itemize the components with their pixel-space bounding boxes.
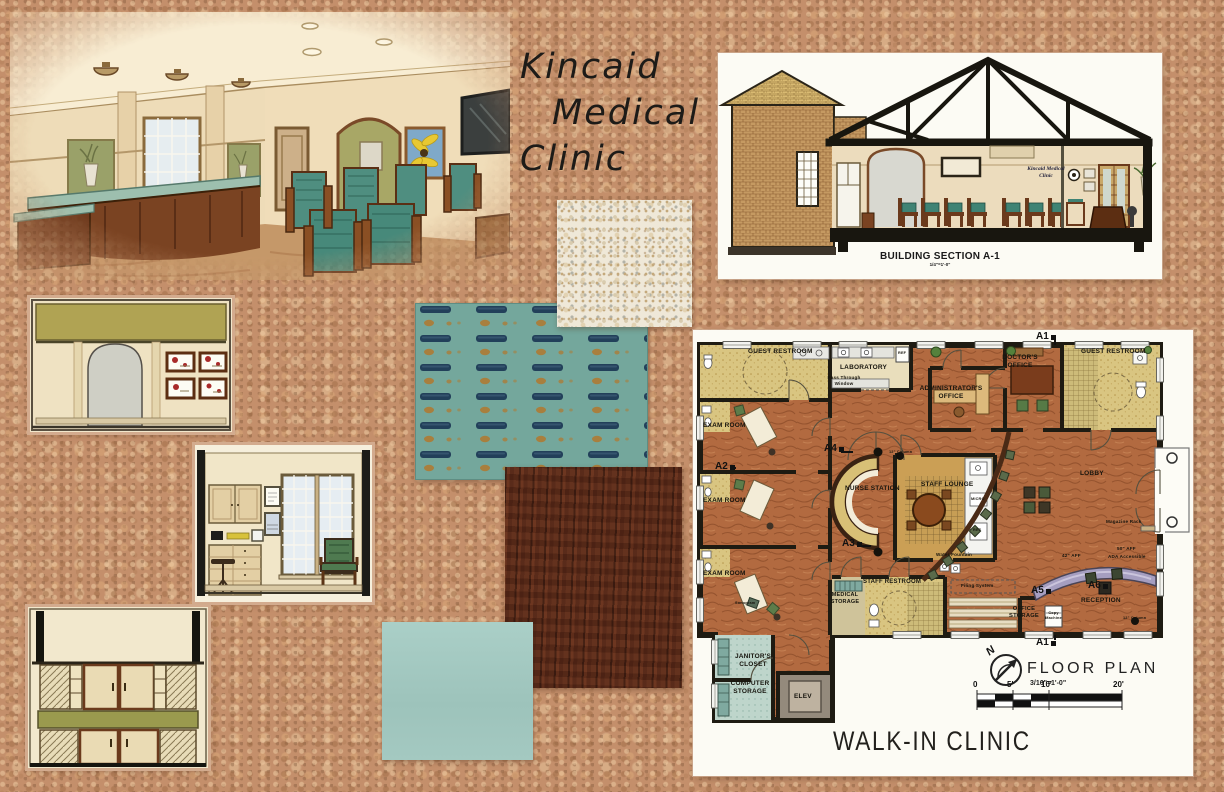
note-aff-50: 50" AFF xyxy=(1117,546,1136,552)
terrazzo-swatch xyxy=(557,200,692,327)
room-label-exam-1: EXAM ROOM xyxy=(703,422,746,430)
scale-tick-20: 20' xyxy=(1113,681,1124,689)
fabric-swatch xyxy=(415,303,648,480)
paint-swatch xyxy=(382,622,533,760)
room-label-exam-2: EXAM ROOM xyxy=(703,497,746,505)
section-marker-a6: A6 xyxy=(1088,581,1108,591)
room-label-lobby: LOBBY xyxy=(1080,470,1104,478)
frieze-band xyxy=(36,304,226,340)
room-label-guest-restroom-right: GUEST RESTROOM xyxy=(1081,348,1146,356)
building-section-drawing xyxy=(718,53,1162,279)
note-aff-42: 42" AFF xyxy=(1062,553,1081,559)
upper-cabinets xyxy=(40,665,196,709)
presentation-board: Kincaid Medical Clinic xyxy=(0,0,1224,792)
note-column-top: 12" Column xyxy=(889,450,912,455)
note-pass-through: Pass Through Window xyxy=(827,375,861,386)
note-magazine-rack: Magazine Rack xyxy=(1106,519,1142,525)
note-sonogram: Sonogram xyxy=(735,601,755,606)
building-section-sheet: Kincaid Medical Clinic BUILDING SECTION … xyxy=(718,53,1162,279)
room-label-elevator: ELEV xyxy=(794,693,812,701)
room-label-exam-3: EXAM ROOM xyxy=(703,570,746,578)
room-label-laboratory: LABORATORY xyxy=(840,364,887,372)
board-title-line1: Kincaid xyxy=(520,44,730,90)
scale-tick-10: 10' xyxy=(1041,681,1052,689)
note-ref-lab: REF xyxy=(898,351,906,356)
scale-bar xyxy=(977,690,1122,710)
note-column-bottom: 12" Column xyxy=(1123,616,1146,621)
section-marker-a4: A4 xyxy=(824,444,844,454)
note-water-fountain: Water Fountain xyxy=(936,552,972,558)
lower-cabinets xyxy=(40,730,196,764)
reception-rendering xyxy=(10,12,510,280)
section-marker-a3: A3 xyxy=(842,539,862,549)
exam-room-elevation-drawing xyxy=(195,445,372,602)
room-label-nurse-station: NURSE STATION xyxy=(845,485,900,493)
room-label-admin-office: ADMINISTRATOR'S OFFICE xyxy=(919,385,983,401)
note-copy-machine: Copy Machine xyxy=(1045,611,1062,620)
window xyxy=(141,118,203,192)
section-marker-a5: A5 xyxy=(1031,586,1051,596)
room-label-staff-restroom: STAFF RESTROOM xyxy=(863,579,921,586)
casework-elevation-drawing xyxy=(28,607,208,768)
room-label-guest-restroom-left: GUEST RESTROOM xyxy=(748,348,813,356)
floor-plan-caption: FLOOR PLAN xyxy=(1027,661,1158,677)
wall-tv xyxy=(462,90,510,154)
section-wall-sign: Kincaid Medical Clinic xyxy=(1010,166,1082,180)
section-scale: 1/4"=1'-0" xyxy=(870,263,1010,268)
section-marker-a1-top: A1 xyxy=(1036,332,1056,342)
note-filing-system: Filing System xyxy=(961,583,993,589)
arch-elevation-drawing xyxy=(30,298,232,432)
room-label-medical-storage: MEDICAL STORAGE xyxy=(826,592,864,605)
floor-plan-sheet: GUEST RESTROOM LABORATORY Pass Through W… xyxy=(693,330,1193,776)
scale-tick-5: 5' xyxy=(1007,681,1013,689)
project-title: WALK-IN CLINIC xyxy=(833,728,1031,755)
reception-rendering-drawing xyxy=(10,12,510,280)
room-label-reception: RECEPTION xyxy=(1081,597,1121,605)
room-label-office-storage: OFFICE STORAGE xyxy=(1005,606,1043,620)
room-label-staff-lounge: STAFF LOUNGE xyxy=(921,481,973,489)
arched-opening xyxy=(88,344,142,426)
room-label-janitors-closet: JANITOR'S CLOSET xyxy=(731,653,775,669)
room-label-doctors-office: DOCTOR'S OFFICE xyxy=(997,354,1043,370)
roof-truss xyxy=(826,60,1152,146)
section-marker-a1-bottom: A1 xyxy=(1036,638,1056,648)
note-ada: ADA Accessible xyxy=(1108,554,1146,560)
board-title-line2: Medical xyxy=(552,90,730,136)
note-micro: MICRO xyxy=(971,497,985,502)
counter-band xyxy=(38,711,198,728)
room-label-computer-storage: COMPUTER STORAGE xyxy=(727,680,773,696)
board-title: Kincaid Medical Clinic xyxy=(520,44,730,183)
note-ref-lounge: REF xyxy=(973,528,981,533)
north-arrow-icon xyxy=(991,655,1021,685)
board-title-line3: Clinic xyxy=(520,136,730,182)
section-marker-a2: A2 xyxy=(715,462,735,472)
scale-tick-0: 0 xyxy=(973,681,977,689)
section-interior xyxy=(832,146,1156,230)
